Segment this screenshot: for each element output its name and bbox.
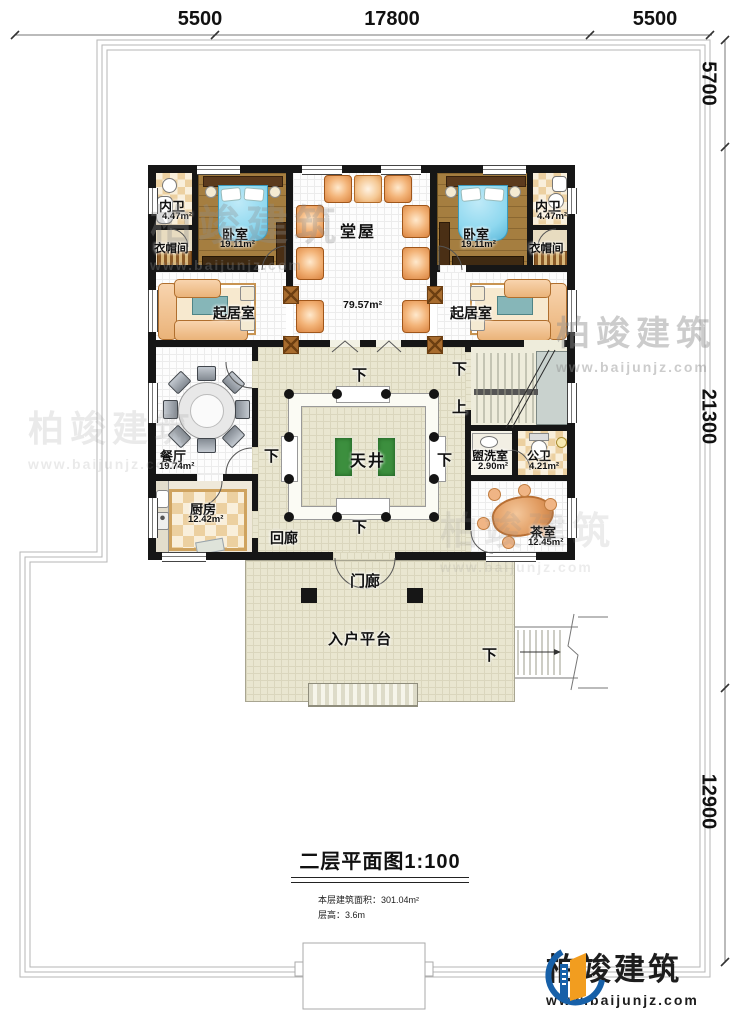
window [302,165,342,175]
column-dot [429,432,439,442]
tea-stool [544,498,557,511]
sofa [174,320,248,341]
dining-door-gap-1 [252,361,258,388]
window [567,188,577,214]
column-dot [284,474,294,484]
dim-top-center: 17800 [347,8,437,31]
dining-door-gap-2 [252,447,258,474]
lattice-column [427,286,443,304]
tea-stool [518,484,531,497]
dresser [439,222,450,266]
coffee-table [497,296,533,315]
side-table [470,286,485,301]
hall-chair [384,175,412,203]
dim-right-3: 12900 [697,767,720,837]
wall-bath-right-south [531,225,567,230]
room-area-bedroom-left: 19.11m² [220,239,255,250]
room-label-courtyard: 天井 [350,447,386,471]
hall-chair [402,300,430,333]
ext-stair-down-label: 下 [482,644,497,665]
dining-table-top [190,394,224,428]
room-area-dining: 19.74m² [159,461,194,472]
step-down-label: 下 [352,364,367,385]
room-label-cloister: 回廊 [270,528,298,548]
room-area-bedroom-right: 19.11m² [461,239,496,250]
pillow [220,187,241,202]
nightstand [509,186,521,198]
bedroom-left-door-gap [258,265,284,272]
window [483,165,526,175]
room-label-cloak-left: 衣帽间 [154,240,189,256]
floor-height-note: 层高：3.6m [280,908,480,921]
bedroom-right-door-gap [440,265,466,272]
stair-up-label: 上 [452,396,467,417]
hall-chair [296,300,324,333]
lattice-column [283,286,299,304]
wall-bath-left-east [192,172,198,265]
brand-logo-icon [540,944,606,1014]
dining-chair [163,400,178,419]
kitchen-north-gap [197,474,223,481]
window [148,383,158,423]
tea-stool [488,488,501,501]
plan-title-text: 二层平面图 [299,851,404,873]
step-down-label: 下 [264,445,279,466]
wall-bath-left-south [155,225,192,230]
pillow [243,187,264,202]
hall-chair [324,175,352,203]
stair-landing [536,351,569,425]
room-area-washroom: 2.90m² [478,461,508,472]
stair-down-label: 下 [452,358,467,379]
column-dot [332,512,342,522]
step-down-label: 下 [437,449,452,470]
window [486,552,536,562]
pillow [483,187,504,202]
porch-column [407,588,423,603]
room-area-tearoom: 12.45m² [528,537,563,548]
side-table [240,286,255,301]
bathtub [552,176,567,192]
room-label-cloak-right: 衣帽间 [529,240,564,256]
column-dot [429,389,439,399]
dining-chair [235,400,250,419]
entrance-opening [333,552,395,560]
room-label-hall: 堂屋 [340,218,376,242]
wall-mid [148,340,575,347]
stair-entry-gap [524,340,564,347]
wall-stair-south [465,425,575,431]
mid-door-gap-1 [330,340,360,347]
room-label-living-left: 起居室 [213,303,255,323]
hall-chair [296,205,324,238]
platform-steps [308,683,418,707]
window [162,552,206,562]
brand-logo: 柏竣建筑 www.baijunjz.com [540,944,699,1008]
step-down-label: 下 [352,516,367,537]
armchair [504,279,551,298]
floor-plan-canvas: 内卫 4.47m² 卧室 19.11m² 衣帽间 堂屋 卧室 19.11m² 内… [0,0,750,1025]
title-block: 二层平面图1:100 本层建筑面积：301.04m² 层高：3.6m [280,845,480,921]
sink [162,178,177,193]
stair-rail [474,389,538,395]
hall-table [354,175,382,203]
hall-chair [296,247,324,280]
wall-bath-south [465,475,575,481]
dim-top-left: 5500 [160,8,240,31]
window [567,290,577,332]
dining-chair [197,438,216,453]
tea-stool [477,517,490,530]
room-label-living-right: 起居室 [450,303,492,323]
window [197,165,240,175]
nightstand [269,186,281,198]
column-dot [429,512,439,522]
wall-lamp [556,437,567,448]
column-dot [381,512,391,522]
room-label-porch: 门廊 [350,570,380,591]
plan-scale: 1:100 [404,851,460,873]
window [148,188,158,214]
dim-top-right: 5500 [615,8,695,31]
hall-chair [402,205,430,238]
column-dot [284,432,294,442]
dining-chair [197,366,216,381]
porch-column [301,588,317,603]
tea-stool [502,536,515,549]
column-dot [429,474,439,484]
column-dot [381,389,391,399]
tearoom-door-gap [465,530,471,552]
title-underline [291,877,469,883]
kitchen-door-gap [252,511,258,538]
wall-hall-right [430,172,437,292]
wall-wc-divider [512,431,518,475]
window [567,383,577,423]
lattice-column [283,336,299,354]
room-area-wc: 4.21m² [529,461,559,472]
window [148,498,158,538]
room-area-neiwei-right: 4.47m² [537,211,567,222]
nightstand [445,186,457,198]
room-area-kitchen: 12.42m² [188,514,223,525]
mid-door-gap-2 [376,340,401,347]
hall-chair [402,247,430,280]
sofa [477,320,551,341]
floor-area-note: 本层建筑面积：301.04m² [280,893,480,906]
wall-hall-left [286,172,293,292]
window [567,498,577,538]
column-dot [332,389,342,399]
pillow [460,187,481,202]
lattice-column [427,336,443,354]
plan-title: 二层平面图1:100 [280,845,480,874]
room-label-platform: 入户平台 [328,628,392,649]
window [148,290,158,332]
column-dot [284,389,294,399]
armchair [174,279,221,298]
dim-right-1: 5700 [697,54,720,114]
room-area-neiwei-left: 4.47m² [162,211,192,222]
nightstand [205,186,217,198]
dim-right-2: 21300 [697,382,720,452]
open-area-label: 79.57m² [343,299,382,311]
window [381,165,421,175]
column-dot [284,512,294,522]
